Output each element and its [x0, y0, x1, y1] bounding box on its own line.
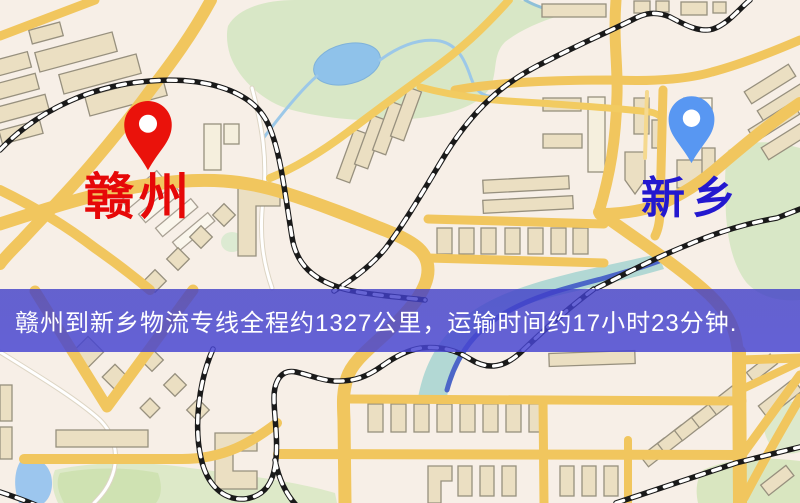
map-screenshot: 赣州 新乡 赣州到新乡物流专线全程约1327公里，运输时间约17小时23分钟. [0, 0, 800, 503]
destination-city-label: 新乡 [641, 177, 743, 221]
route-info-text: 赣州到新乡物流专线全程约1327公里，运输时间约17小时23分钟. [0, 303, 737, 338]
destination-marker-icon[interactable] [664, 95, 719, 169]
origin-city-label: 赣州 [84, 172, 194, 222]
map-canvas [0, 0, 800, 503]
origin-marker-icon[interactable] [119, 100, 177, 176]
route-info-banner: 赣州到新乡物流专线全程约1327公里，运输时间约17小时23分钟. [0, 289, 800, 352]
